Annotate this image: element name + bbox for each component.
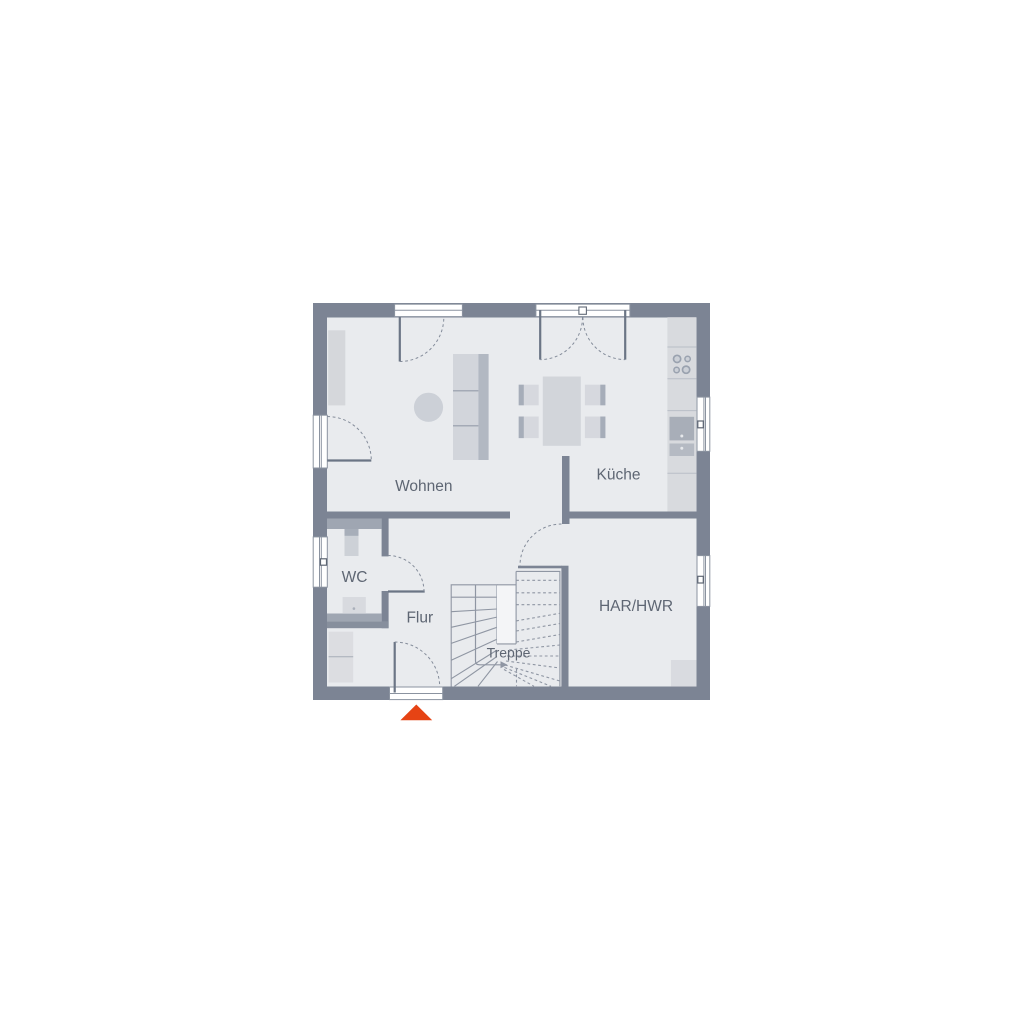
svg-text:WC: WC	[342, 569, 368, 586]
svg-text:Wohnen: Wohnen	[395, 478, 452, 495]
svg-text:Treppe: Treppe	[487, 645, 531, 661]
svg-text:Flur: Flur	[406, 610, 433, 627]
svg-text:Küche: Küche	[597, 467, 641, 484]
svg-text:HAR/HWR: HAR/HWR	[599, 598, 673, 615]
